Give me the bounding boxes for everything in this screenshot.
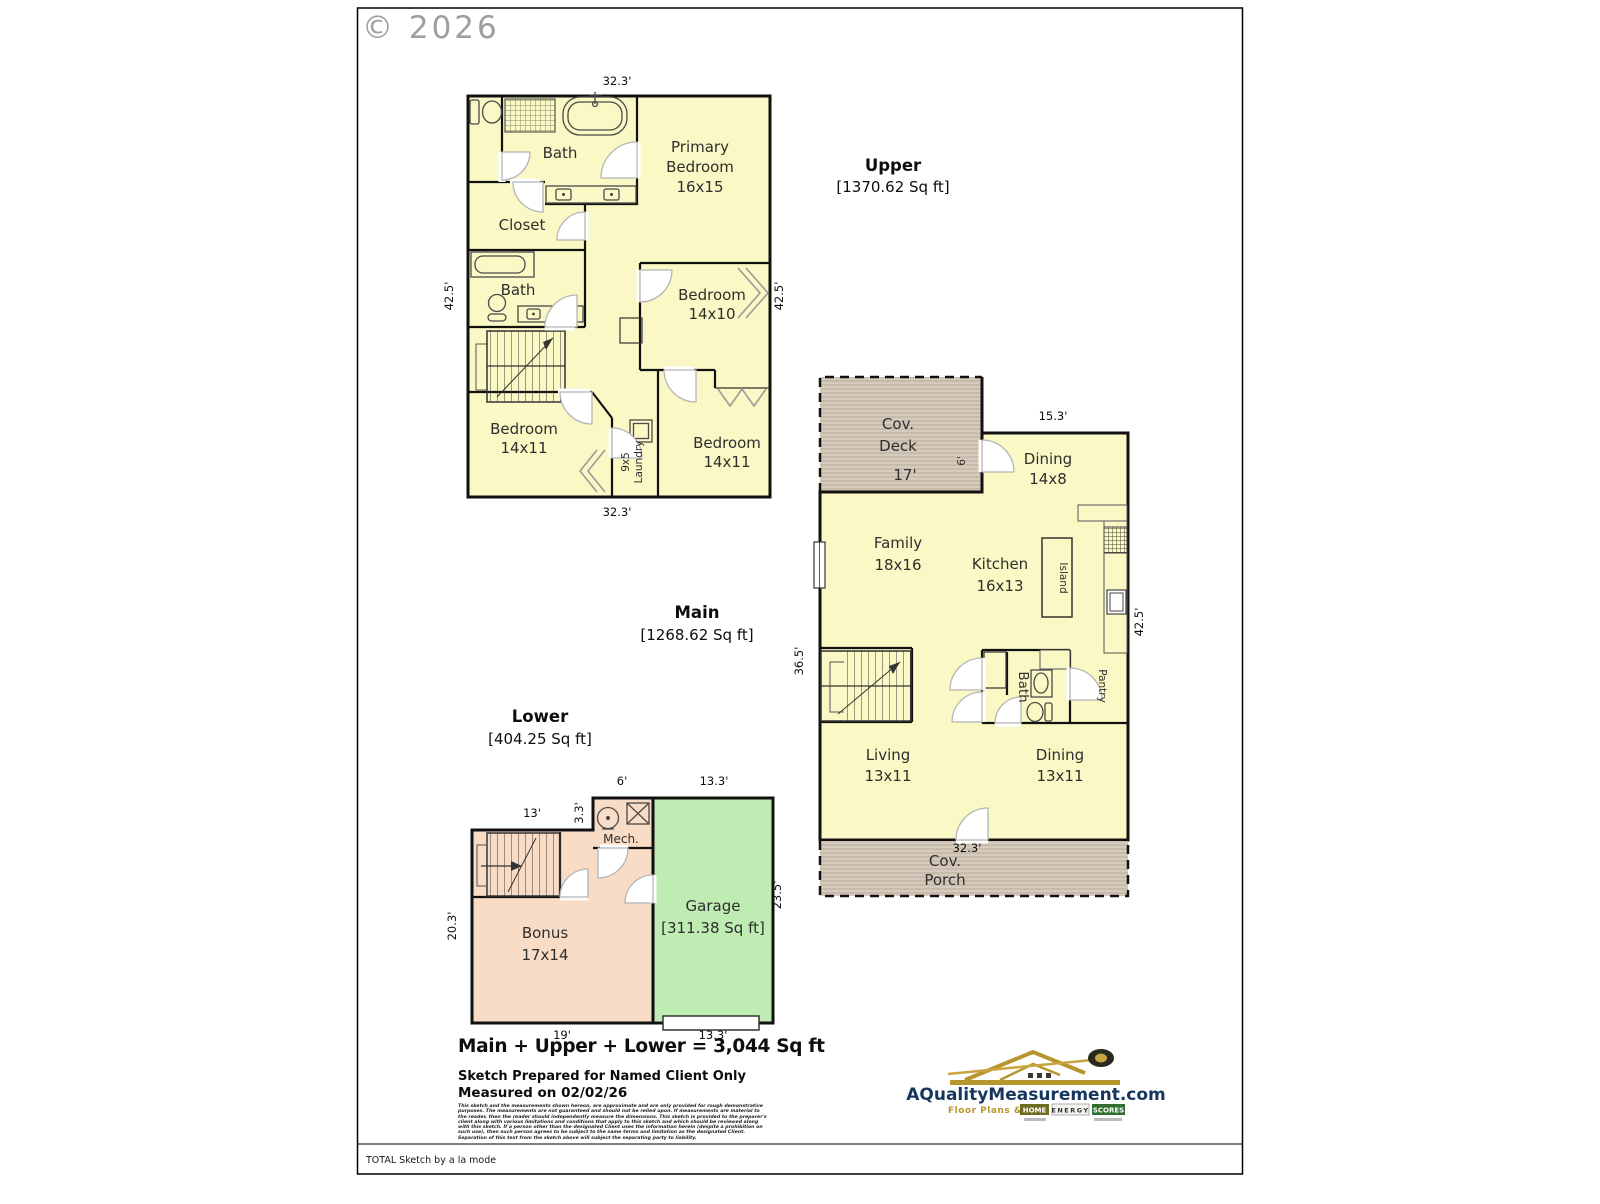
- room-label-dining1-2: 14x8: [1029, 470, 1067, 488]
- logo-tagline-text: Floor Plans &: [948, 1106, 1022, 1116]
- room-label-bed2-1: Bedroom: [678, 286, 746, 304]
- room-label-primary-1: Primary: [671, 138, 729, 156]
- room-label-garage-2: [311.38 Sq ft]: [661, 919, 765, 937]
- upper-dim-bottom: 32.3': [603, 505, 632, 519]
- disclaimer-text: This sketch and the measurements shown h…: [458, 1104, 770, 1141]
- room-label-laundry-size: 9x5: [620, 452, 632, 472]
- lower-level-title: Lower: [512, 707, 569, 726]
- badge-home-label: HOME: [1023, 1107, 1047, 1115]
- lower-floor-plan: Mech. Bonus 17x14 Garage [311.38 Sq ft] …: [445, 707, 784, 1042]
- main-dim-top: 15.3': [1039, 409, 1068, 423]
- room-label-bath1: Bath: [543, 144, 578, 162]
- room-label-primary-2: Bedroom: [666, 158, 734, 176]
- room-label-bed4-1: Bedroom: [693, 434, 761, 452]
- room-label-family-1: Family: [874, 534, 922, 552]
- floorplan-sketch-page: © 2026: [0, 0, 1600, 1200]
- lower-dim-mech: 6': [617, 774, 627, 788]
- room-label-bed3-2: 14x11: [500, 439, 547, 457]
- lower-level-sqft: [404.25 Sq ft]: [488, 730, 592, 748]
- lower-dim-jog: 3.3': [572, 802, 586, 823]
- room-label-mech: Mech.: [603, 832, 639, 846]
- main-dim-bottom: 32.3': [953, 841, 982, 855]
- room-label-bonus-1: Bonus: [522, 924, 568, 942]
- room-label-deck-1: Cov.: [882, 415, 914, 433]
- badge-fineprint-2: [1094, 1118, 1122, 1121]
- room-label-bed2-2: 14x10: [688, 305, 735, 323]
- range-stove-icon: [1104, 527, 1127, 553]
- main-dim-right: 42.5': [1132, 608, 1146, 637]
- measured-date-line: Measured on 02/02/26: [458, 1085, 770, 1101]
- upper-staircase: [476, 331, 565, 402]
- room-label-deck-dim: 17': [893, 466, 916, 484]
- total-sqft-line: Main + Upper + Lower = 3,044 Sq ft: [458, 1036, 770, 1057]
- lower-dim-left: 20.3': [445, 912, 459, 941]
- room-label-dining2-1: Dining: [1036, 746, 1084, 764]
- room-label-bed4-2: 14x11: [703, 453, 750, 471]
- badge-fineprint-1: [1024, 1118, 1046, 1121]
- room-label-living-2: 13x11: [864, 767, 911, 785]
- family-window-icon: [814, 542, 825, 588]
- lower-staircase: [477, 833, 560, 896]
- main-staircase: [821, 651, 911, 721]
- room-label-living-1: Living: [866, 746, 911, 764]
- room-label-pantry: Pantry: [1096, 669, 1108, 703]
- main-level-sqft: [1268.62 Sq ft]: [640, 626, 753, 644]
- upper-level-title: Upper: [865, 156, 922, 175]
- copyright-watermark: © 2026: [362, 10, 500, 46]
- room-label-island: Island: [1057, 562, 1069, 593]
- logo-domain-text: AQualityMeasurement.com: [906, 1085, 1166, 1105]
- shower-icon: [505, 99, 555, 132]
- room-label-family-2: 18x16: [874, 556, 921, 574]
- main-dim-left: 36.5': [792, 647, 806, 676]
- badge-scores-label: SCORES: [1093, 1107, 1124, 1115]
- room-label-porch-2: Porch: [924, 871, 965, 889]
- main-level-title: Main: [675, 603, 720, 622]
- room-label-bed3-1: Bedroom: [490, 420, 558, 438]
- room-label-bath2: Bath: [501, 281, 536, 299]
- upper-dim-left: 42.5': [442, 282, 456, 311]
- lower-dim-bonus-top: 13': [523, 806, 541, 820]
- upper-bath1-vanity-icon: [546, 186, 636, 203]
- room-label-dining2-2: 13x11: [1036, 767, 1083, 785]
- total-sketch-credit: TOTAL Sketch by a la mode: [366, 1155, 496, 1166]
- summary-block: Main + Upper + Lower = 3,044 Sq ft Sketc…: [458, 1036, 770, 1141]
- tape-measure-icon: [1088, 1049, 1114, 1067]
- prepared-for-line: Sketch Prepared for Named Client Only: [458, 1069, 770, 1084]
- room-label-garage-1: Garage: [686, 897, 741, 915]
- upper-level-sqft: [1370.62 Sq ft]: [836, 178, 949, 196]
- logo-window-squares: [1028, 1073, 1051, 1078]
- room-label-bonus-2: 17x14: [521, 946, 568, 964]
- upper-dim-top: 32.3': [603, 74, 632, 88]
- room-label-kitchen-1: Kitchen: [972, 555, 1028, 573]
- upper-dim-right: 42.5': [772, 282, 786, 311]
- aquality-logo: AQualityMeasurement.com Floor Plans & HO…: [906, 1049, 1166, 1121]
- room-label-dining1-1: Dining: [1024, 450, 1072, 468]
- water-heater-icon: [598, 808, 619, 830]
- oven-appliance-icon: [1107, 590, 1126, 614]
- floorplan-canvas: © 2026: [0, 0, 1600, 1200]
- badge-energy-label: ENERGY: [1051, 1107, 1089, 1115]
- deck-depth-dim: 6': [956, 456, 968, 466]
- room-label-primary-3: 16x15: [676, 178, 723, 196]
- room-label-laundry: Laundry: [633, 441, 645, 484]
- room-label-main-bath: Bath: [1015, 671, 1031, 702]
- room-label-closet: Closet: [499, 216, 546, 234]
- lower-dim-garage-top: 13.3': [700, 774, 729, 788]
- lower-dim-right: 23.5': [770, 881, 784, 910]
- room-label-kitchen-2: 16x13: [976, 577, 1023, 595]
- room-label-deck-2: Deck: [879, 437, 917, 455]
